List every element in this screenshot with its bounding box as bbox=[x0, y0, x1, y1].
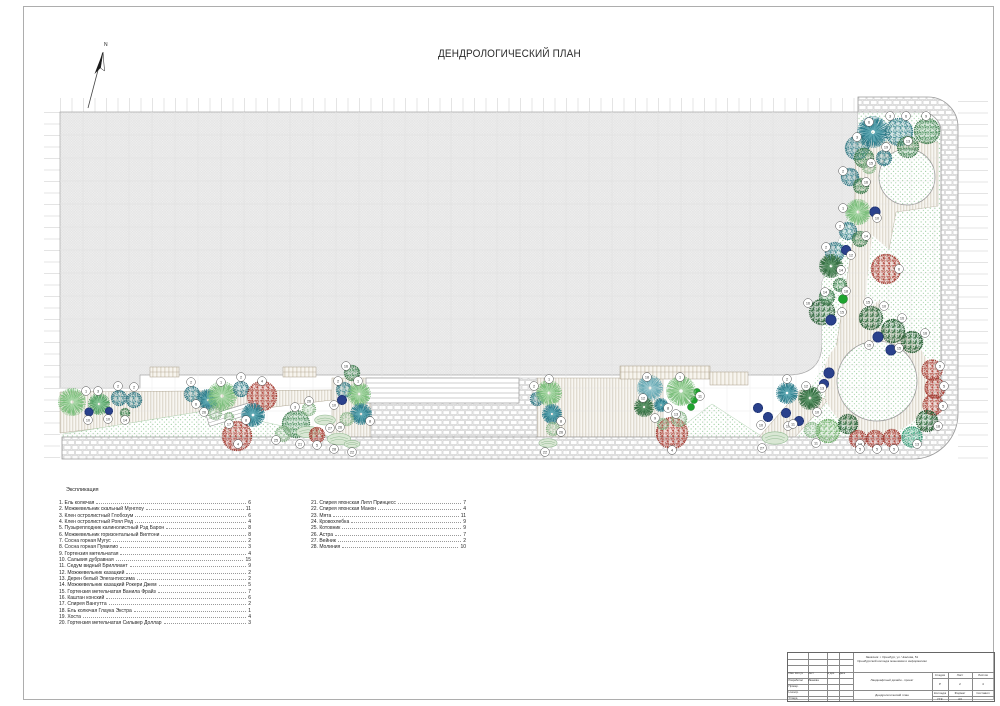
svg-text:9: 9 bbox=[654, 416, 656, 420]
svg-text:27: 27 bbox=[760, 446, 764, 450]
svg-text:28: 28 bbox=[332, 447, 336, 451]
svg-text:2: 2 bbox=[825, 245, 827, 249]
svg-text:26: 26 bbox=[202, 410, 206, 414]
svg-text:16: 16 bbox=[806, 301, 810, 305]
svg-text:3: 3 bbox=[294, 405, 296, 409]
svg-text:2: 2 bbox=[337, 379, 339, 383]
svg-text:10: 10 bbox=[86, 418, 90, 422]
svg-text:1: 1 bbox=[842, 206, 844, 210]
svg-text:4: 4 bbox=[261, 379, 263, 383]
svg-text:13: 13 bbox=[906, 139, 910, 143]
svg-text:6: 6 bbox=[195, 402, 197, 406]
svg-text:5: 5 bbox=[316, 443, 318, 447]
svg-text:1: 1 bbox=[85, 389, 87, 393]
svg-text:6: 6 bbox=[905, 114, 907, 118]
svg-text:13: 13 bbox=[915, 442, 919, 446]
svg-text:9: 9 bbox=[925, 114, 927, 118]
svg-text:1: 1 bbox=[220, 380, 222, 384]
svg-text:5: 5 bbox=[942, 404, 944, 408]
svg-text:5: 5 bbox=[943, 384, 945, 388]
svg-text:15: 15 bbox=[840, 310, 844, 314]
svg-text:1: 1 bbox=[548, 377, 550, 381]
svg-text:3: 3 bbox=[97, 389, 99, 393]
svg-text:26: 26 bbox=[559, 430, 563, 434]
svg-text:4: 4 bbox=[237, 442, 239, 446]
svg-text:12: 12 bbox=[849, 253, 853, 257]
svg-text:27: 27 bbox=[328, 426, 332, 430]
svg-text:2: 2 bbox=[842, 169, 844, 173]
svg-text:11: 11 bbox=[698, 394, 702, 398]
svg-text:18: 18 bbox=[844, 289, 848, 293]
svg-text:2: 2 bbox=[786, 377, 788, 381]
svg-text:10: 10 bbox=[875, 216, 879, 220]
svg-text:8: 8 bbox=[667, 406, 669, 410]
svg-text:16: 16 bbox=[864, 180, 868, 184]
svg-text:8: 8 bbox=[560, 419, 562, 423]
svg-text:11: 11 bbox=[791, 422, 795, 426]
svg-text:18: 18 bbox=[645, 375, 649, 379]
svg-text:12: 12 bbox=[804, 384, 808, 388]
svg-text:2: 2 bbox=[117, 384, 119, 388]
svg-text:19: 19 bbox=[884, 145, 888, 149]
svg-text:3: 3 bbox=[856, 135, 858, 139]
svg-text:14: 14 bbox=[839, 268, 843, 272]
svg-text:2: 2 bbox=[533, 384, 535, 388]
svg-text:8: 8 bbox=[369, 419, 371, 423]
svg-text:8: 8 bbox=[245, 418, 247, 422]
svg-text:21: 21 bbox=[298, 442, 302, 446]
svg-text:15: 15 bbox=[897, 346, 901, 350]
svg-text:11: 11 bbox=[814, 441, 818, 445]
svg-text:15: 15 bbox=[867, 343, 871, 347]
svg-text:16: 16 bbox=[900, 316, 904, 320]
svg-text:2: 2 bbox=[240, 375, 242, 379]
svg-text:10: 10 bbox=[332, 403, 336, 407]
svg-text:13: 13 bbox=[820, 386, 824, 390]
svg-text:10: 10 bbox=[882, 304, 886, 308]
svg-text:10: 10 bbox=[759, 423, 763, 427]
svg-text:6: 6 bbox=[868, 120, 870, 124]
svg-text:5: 5 bbox=[939, 364, 941, 368]
svg-text:16: 16 bbox=[923, 331, 927, 335]
svg-text:5: 5 bbox=[876, 447, 878, 451]
svg-text:5: 5 bbox=[859, 447, 861, 451]
svg-text:18: 18 bbox=[936, 424, 940, 428]
svg-text:16: 16 bbox=[344, 364, 348, 368]
svg-text:15: 15 bbox=[869, 161, 873, 165]
svg-text:14: 14 bbox=[123, 418, 127, 422]
svg-text:2: 2 bbox=[839, 224, 841, 228]
svg-text:26: 26 bbox=[307, 399, 311, 403]
svg-text:22: 22 bbox=[350, 450, 354, 454]
svg-text:2: 2 bbox=[190, 380, 192, 384]
svg-text:4: 4 bbox=[671, 448, 673, 452]
svg-text:2: 2 bbox=[133, 385, 135, 389]
svg-text:10: 10 bbox=[106, 417, 110, 421]
svg-text:5: 5 bbox=[893, 447, 895, 451]
svg-text:14: 14 bbox=[864, 234, 868, 238]
svg-text:1: 1 bbox=[679, 375, 681, 379]
svg-text:6: 6 bbox=[898, 267, 900, 271]
svg-text:22: 22 bbox=[543, 450, 547, 454]
svg-text:3: 3 bbox=[889, 114, 891, 118]
svg-text:N: N bbox=[104, 42, 108, 48]
svg-text:12: 12 bbox=[641, 396, 645, 400]
svg-text:14: 14 bbox=[823, 290, 827, 294]
svg-text:26: 26 bbox=[338, 425, 342, 429]
svg-text:1: 1 bbox=[357, 379, 359, 383]
svg-text:15: 15 bbox=[866, 300, 870, 304]
svg-text:13: 13 bbox=[674, 412, 678, 416]
svg-text:25: 25 bbox=[274, 438, 278, 442]
svg-text:17: 17 bbox=[227, 422, 231, 426]
svg-text:10: 10 bbox=[815, 410, 819, 414]
